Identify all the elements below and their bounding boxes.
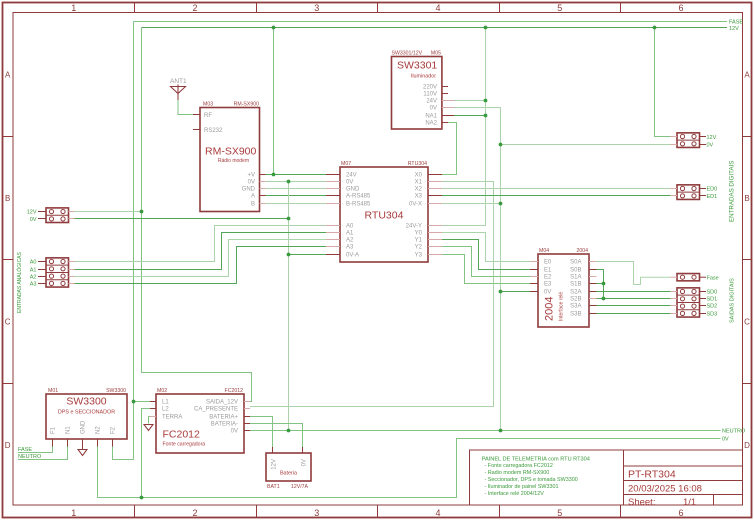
svg-text:3: 3 — [314, 3, 319, 13]
svg-text:ANT1: ANT1 — [170, 78, 187, 85]
svg-text:FC2012: FC2012 — [163, 429, 201, 441]
svg-text:PAINEL DE TELEMETRIA com RTU R: PAINEL DE TELEMETRIA com RTU RT304 — [482, 456, 590, 462]
svg-text:RF: RF — [204, 113, 212, 119]
svg-text:PT-RT304: PT-RT304 — [628, 468, 676, 480]
svg-text:+V: +V — [247, 173, 255, 179]
svg-text:A3: A3 — [30, 282, 37, 288]
svg-text:E0: E0 — [544, 260, 552, 266]
svg-text:2: 2 — [192, 3, 197, 13]
svg-text:S3A: S3A — [570, 304, 581, 310]
svg-text:FC2012: FC2012 — [225, 388, 244, 394]
svg-text:0V: 0V — [302, 459, 308, 466]
svg-text:A: A — [251, 194, 255, 200]
svg-text:SW3300: SW3300 — [106, 388, 126, 394]
svg-text:2: 2 — [192, 508, 197, 518]
svg-text:BAT1: BAT1 — [267, 484, 280, 490]
svg-text:SW3300: SW3300 — [66, 396, 106, 408]
svg-text:0V: 0V — [30, 217, 37, 223]
svg-text:A-RS485: A-RS485 — [346, 194, 371, 200]
svg-text:12V: 12V — [27, 210, 37, 216]
svg-text:Y2: Y2 — [415, 245, 423, 251]
svg-text:GND: GND — [346, 187, 360, 193]
svg-text:DPS e SECCIONADOR: DPS e SECCIONADOR — [58, 410, 115, 416]
svg-text:RS232: RS232 — [204, 128, 223, 134]
svg-text:C: C — [744, 318, 750, 327]
svg-text:M07: M07 — [341, 161, 351, 167]
svg-text:E3: E3 — [544, 282, 552, 288]
svg-text:D: D — [5, 441, 11, 450]
svg-text:F2: F2 — [111, 426, 117, 434]
svg-text:Fase: Fase — [707, 275, 719, 281]
svg-text:NA1: NA1 — [425, 114, 437, 120]
svg-text:1: 1 — [71, 508, 76, 518]
svg-text:12V/7A: 12V/7A — [291, 484, 309, 490]
svg-text:N2: N2 — [96, 426, 102, 434]
svg-text:5: 5 — [557, 3, 562, 13]
svg-text:B: B — [5, 194, 10, 203]
svg-text:S3B: S3B — [570, 312, 581, 318]
svg-text:RTU304: RTU304 — [365, 210, 404, 222]
svg-text:- Seccionador, DPS e tomada SW: - Seccionador, DPS e tomada SW3300 — [485, 477, 578, 483]
svg-text:BATERIA+: BATERIA+ — [209, 415, 238, 421]
svg-text:A1: A1 — [30, 268, 37, 274]
svg-text:TERRA: TERRA — [162, 415, 182, 421]
svg-text:0V: 0V — [722, 436, 729, 442]
svg-text:12V: 12V — [272, 459, 278, 470]
svg-text:S0A: S0A — [570, 260, 581, 266]
svg-text:0V: 0V — [544, 290, 551, 296]
svg-text:Y3: Y3 — [415, 253, 423, 259]
svg-text:1/1: 1/1 — [683, 497, 696, 508]
svg-text:GND: GND — [81, 420, 87, 434]
svg-text:C: C — [5, 318, 11, 327]
svg-text:Bateria: Bateria — [280, 471, 297, 477]
svg-text:F1: F1 — [51, 426, 57, 434]
svg-text:M04: M04 — [539, 248, 549, 254]
svg-text:12V: 12V — [707, 135, 717, 141]
svg-text:SD0: SD0 — [707, 290, 718, 296]
svg-text:0V: 0V — [707, 143, 714, 149]
svg-text:- Fonte carregadora FC2012: - Fonte carregadora FC2012 — [485, 463, 553, 469]
svg-text:NEUTRO: NEUTRO — [722, 429, 746, 435]
svg-text:0V: 0V — [231, 429, 238, 435]
svg-text:- Interface relé 2004/12V: - Interface relé 2004/12V — [485, 491, 545, 497]
svg-text:1: 1 — [71, 3, 76, 13]
svg-text:E2: E2 — [544, 275, 552, 281]
svg-text:M02: M02 — [157, 388, 167, 394]
svg-text:SD1: SD1 — [707, 297, 718, 303]
svg-text:X0: X0 — [415, 173, 423, 179]
svg-text:RTU304: RTU304 — [408, 161, 427, 167]
svg-text:0V-A: 0V-A — [346, 253, 359, 259]
svg-text:4: 4 — [435, 508, 440, 518]
svg-text:0V-X: 0V-X — [409, 202, 422, 208]
svg-text:5: 5 — [557, 508, 562, 518]
svg-text:RM-SX900: RM-SX900 — [234, 102, 259, 108]
svg-text:A2: A2 — [30, 275, 37, 281]
svg-text:20/03/2025 16:08: 20/03/2025 16:08 — [628, 484, 702, 495]
svg-text:ED0: ED0 — [707, 187, 718, 193]
svg-text:X2: X2 — [415, 187, 423, 193]
svg-text:2004: 2004 — [576, 248, 588, 254]
svg-text:GND: GND — [242, 187, 256, 193]
svg-text:S2B: S2B — [570, 297, 581, 303]
svg-text:ED1: ED1 — [707, 194, 718, 200]
svg-text:NA2: NA2 — [425, 121, 437, 127]
svg-text:A: A — [744, 71, 750, 80]
svg-text:24V: 24V — [346, 173, 357, 179]
svg-text:6: 6 — [678, 508, 683, 518]
svg-text:6: 6 — [678, 3, 683, 13]
svg-text:Fonte carregadora: Fonte carregadora — [163, 442, 206, 448]
svg-text:Interface relé: Interface relé — [559, 292, 565, 321]
svg-text:0V: 0V — [430, 106, 437, 112]
svg-text:A2: A2 — [346, 238, 354, 244]
svg-text:SW3301: SW3301 — [397, 60, 437, 72]
svg-text:B-RS485: B-RS485 — [346, 202, 371, 208]
svg-text:B: B — [251, 202, 255, 208]
svg-text:A0: A0 — [346, 224, 354, 230]
svg-text:FASE: FASE — [18, 447, 32, 453]
svg-text:ENTRADAS ANALÓGICAS: ENTRADAS ANALÓGICAS — [16, 251, 23, 313]
svg-text:B: B — [744, 194, 749, 203]
svg-text:Sheet:: Sheet: — [628, 497, 655, 508]
svg-text:X3: X3 — [415, 194, 423, 200]
svg-text:D: D — [744, 441, 750, 450]
svg-text:ENTRADAS DIGITAIS: ENTRADAS DIGITAIS — [729, 161, 736, 222]
svg-text:X1: X1 — [415, 180, 423, 186]
svg-text:110V: 110V — [423, 92, 437, 98]
svg-text:Y1: Y1 — [415, 238, 423, 244]
svg-text:Iluminador: Iluminador — [411, 74, 436, 80]
svg-text:A3: A3 — [346, 245, 354, 251]
svg-text:24V: 24V — [426, 99, 437, 105]
svg-text:E1: E1 — [544, 268, 552, 274]
svg-text:A: A — [5, 71, 11, 80]
svg-text:Rádio modem: Rádio modem — [218, 158, 249, 164]
svg-text:0V: 0V — [346, 180, 353, 186]
svg-text:NEUTRO: NEUTRO — [18, 454, 42, 460]
svg-text:3: 3 — [314, 508, 319, 518]
svg-text:L1: L1 — [162, 400, 169, 406]
svg-text:SD3: SD3 — [707, 312, 718, 318]
svg-text:RM-SX900: RM-SX900 — [205, 146, 257, 158]
svg-text:A0: A0 — [30, 260, 37, 266]
svg-text:M05: M05 — [431, 50, 441, 56]
svg-text:S0B: S0B — [570, 268, 581, 274]
svg-text:2004: 2004 — [544, 297, 556, 321]
svg-text:4: 4 — [435, 3, 440, 13]
svg-text:SD2: SD2 — [707, 304, 718, 310]
svg-text:M01: M01 — [48, 388, 58, 394]
svg-text:S1B: S1B — [570, 282, 581, 288]
svg-text:24V-Y: 24V-Y — [406, 224, 422, 230]
svg-text:SAIDAS DIGITAIS: SAIDAS DIGITAIS — [730, 278, 736, 323]
svg-text:12V: 12V — [729, 26, 739, 32]
svg-text:SW3301/12V: SW3301/12V — [392, 50, 423, 56]
svg-text:S2A: S2A — [570, 290, 581, 296]
svg-text:M03: M03 — [203, 102, 213, 108]
svg-text:BATERIA-: BATERIA- — [211, 422, 238, 428]
svg-text:Y0: Y0 — [415, 231, 423, 237]
svg-text:FASE: FASE — [729, 19, 743, 25]
svg-text:L2: L2 — [162, 407, 169, 413]
svg-text:A1: A1 — [346, 231, 354, 237]
svg-text:N1: N1 — [66, 426, 72, 434]
svg-text:S1A: S1A — [570, 275, 581, 281]
svg-text:CA_PRESENTE: CA_PRESENTE — [194, 407, 238, 413]
svg-text:SAIDA_12V: SAIDA_12V — [206, 400, 238, 406]
svg-text:220V: 220V — [423, 85, 437, 91]
svg-text:- Radio modem RM-SX900: - Radio modem RM-SX900 — [485, 470, 550, 476]
svg-text:- Iluminador de painel SW3301: - Iluminador de painel SW3301 — [485, 484, 559, 490]
svg-text:0V: 0V — [248, 180, 255, 186]
